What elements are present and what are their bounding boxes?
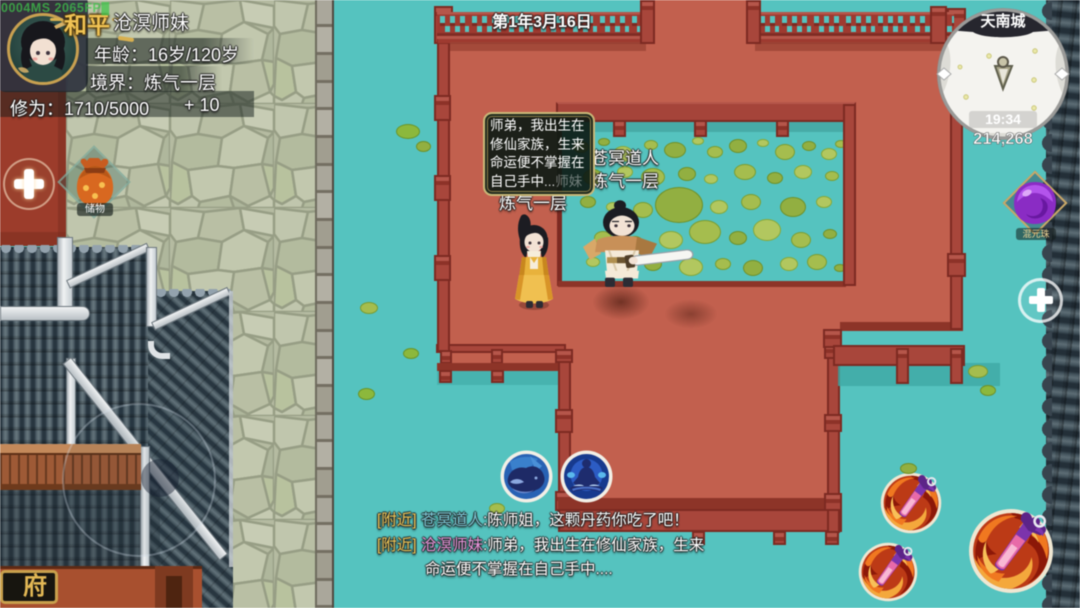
svg-text:19:34: 19:34 [985, 111, 1021, 127]
svg-text:214,268: 214,268 [973, 130, 1033, 148]
svg-text:天南城: 天南城 [980, 12, 1025, 30]
